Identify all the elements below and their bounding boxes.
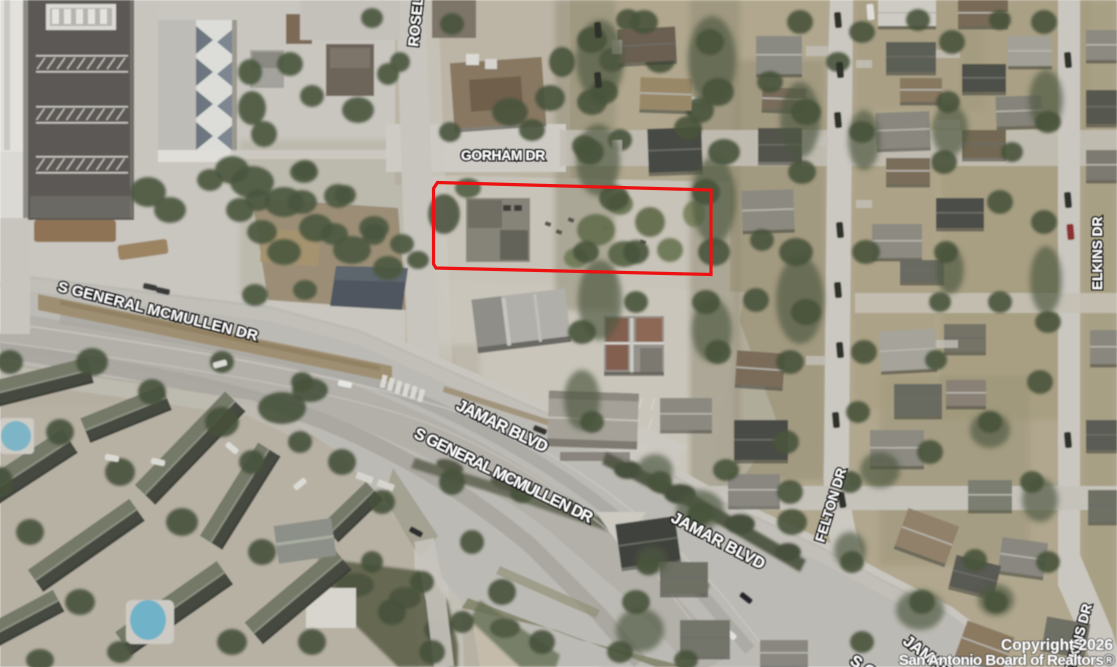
svg-text:San Antonio Board of Realtors®: San Antonio Board of Realtors®: [899, 652, 1115, 667]
svg-text:ELKINS DR: ELKINS DR: [1090, 217, 1105, 290]
svg-text:GORHAM DR: GORHAM DR: [461, 148, 545, 163]
